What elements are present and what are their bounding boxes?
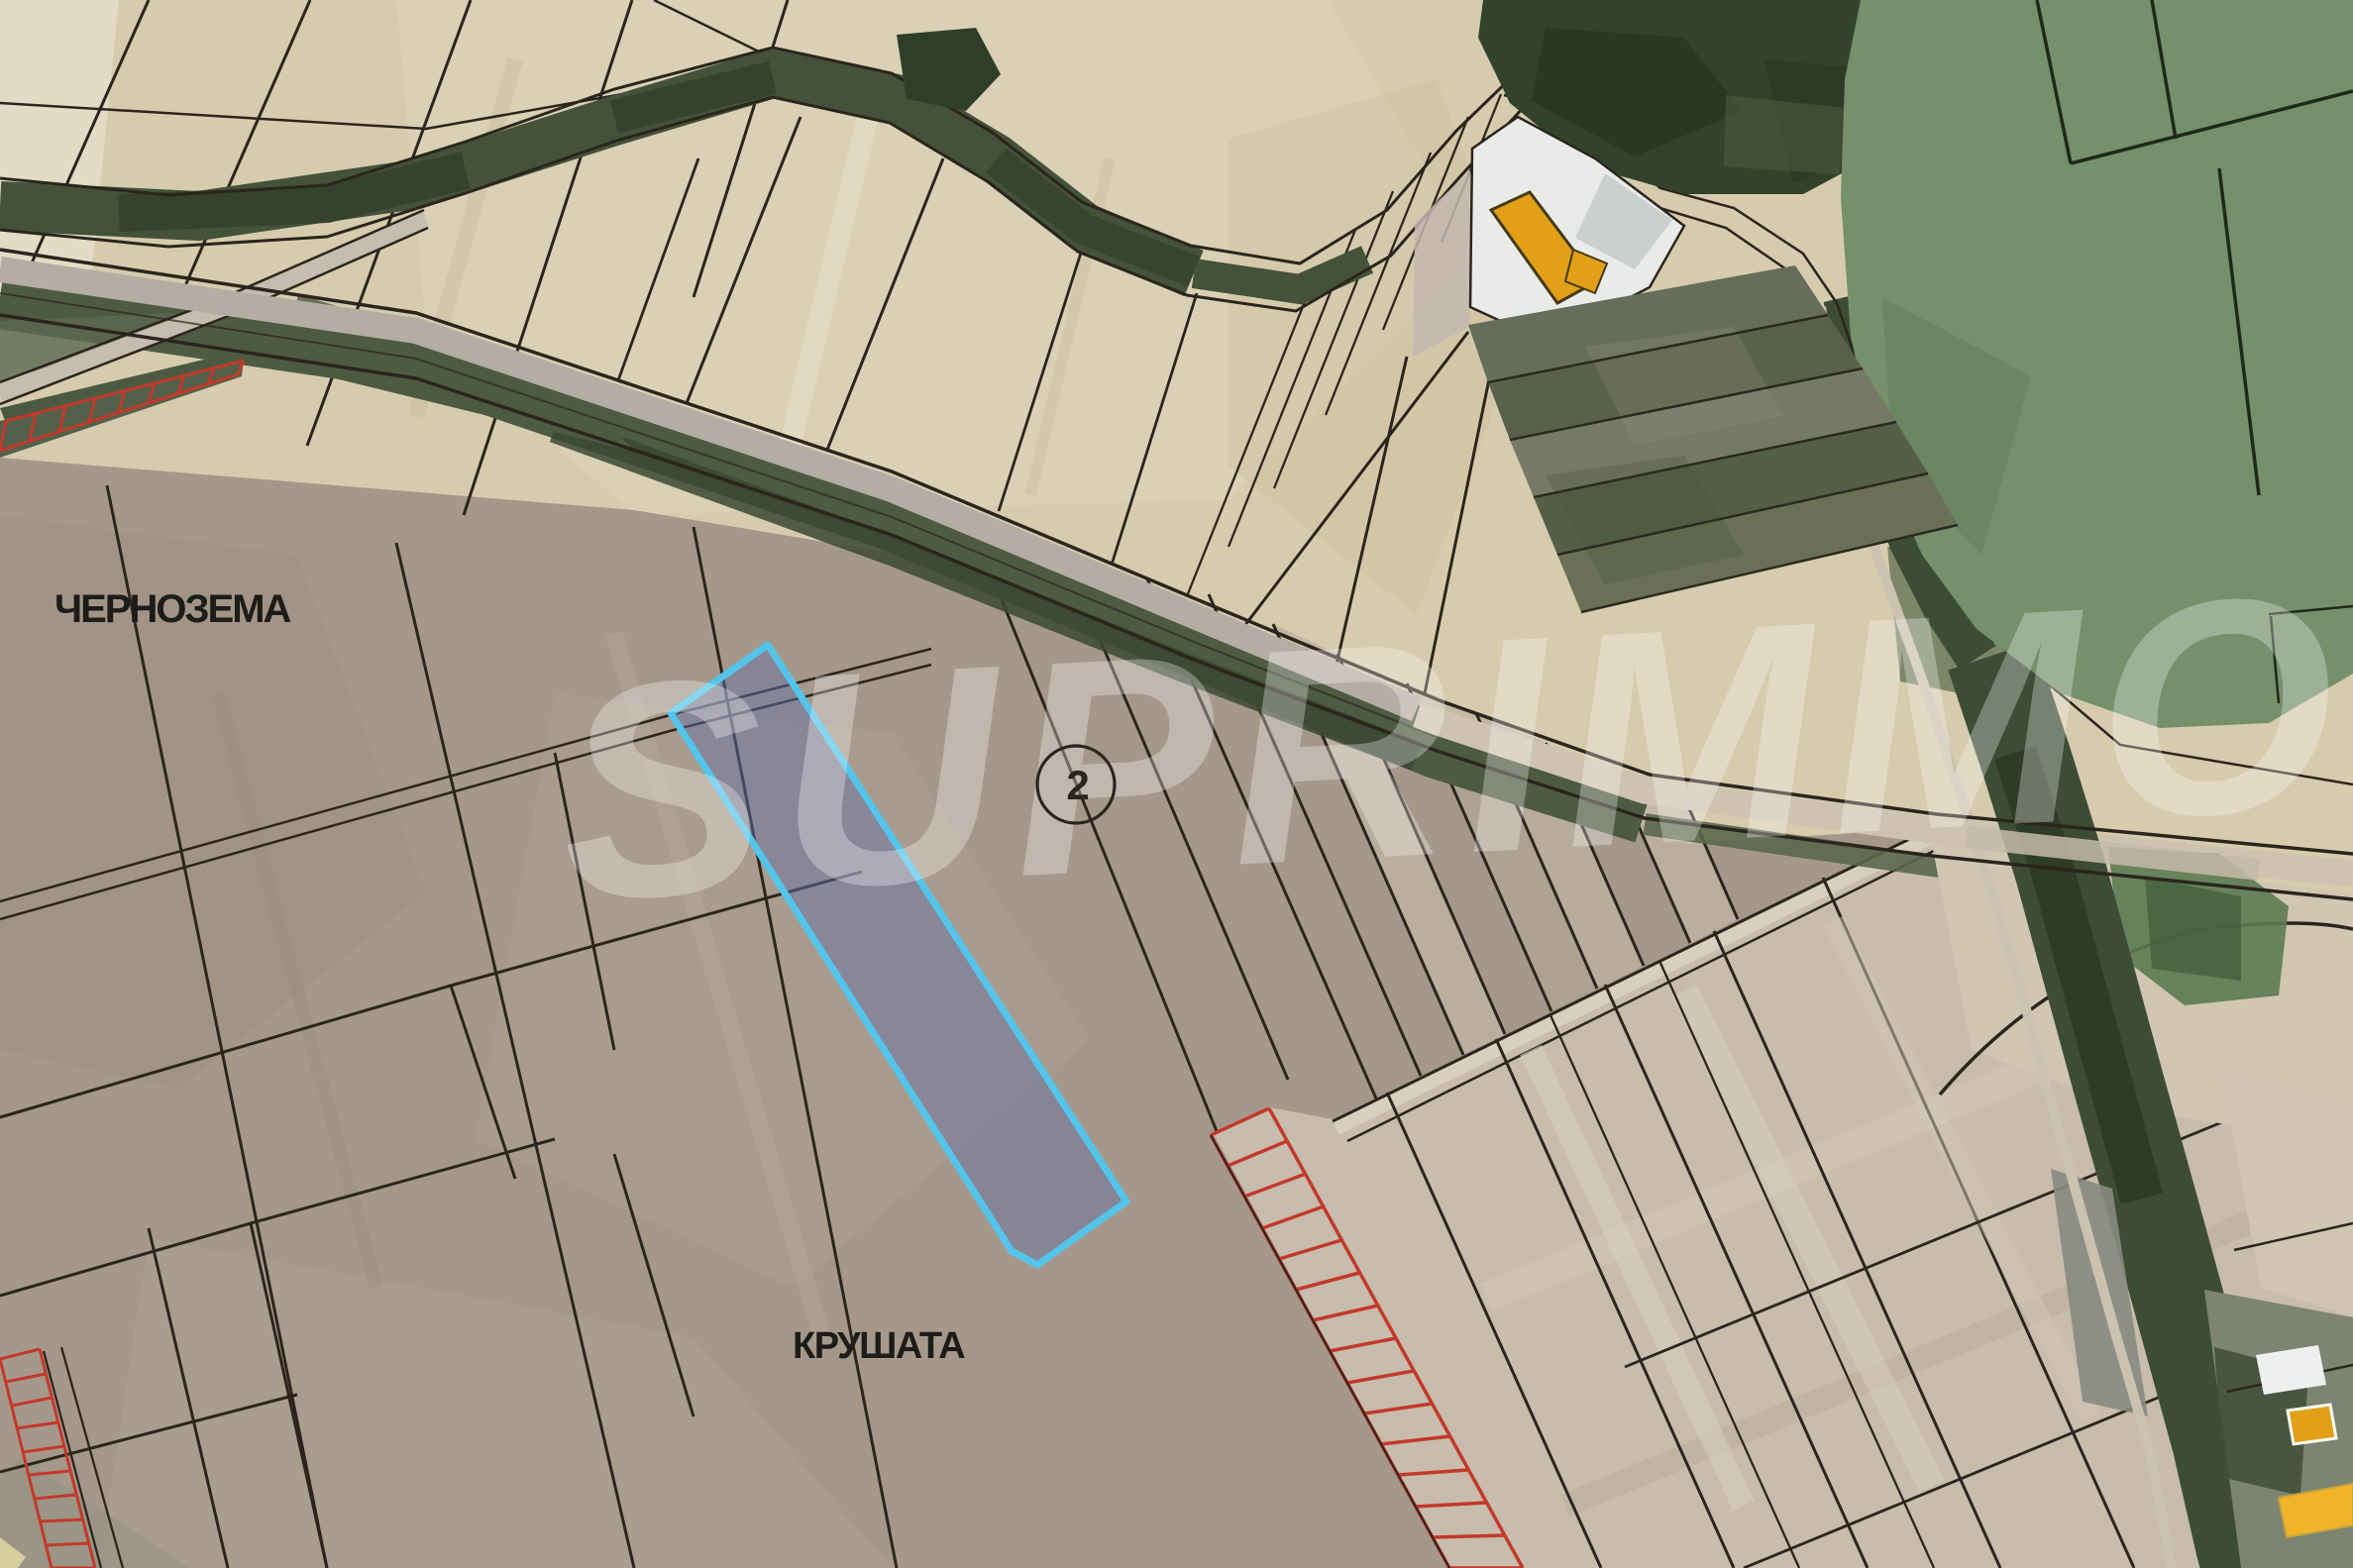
svg-text:КРУШАТА: КРУШАТА <box>793 1325 965 1367</box>
svg-text:ЧЕРНОЗЕМА: ЧЕРНОЗЕМА <box>54 587 291 631</box>
svg-text:2: 2 <box>1066 762 1089 808</box>
